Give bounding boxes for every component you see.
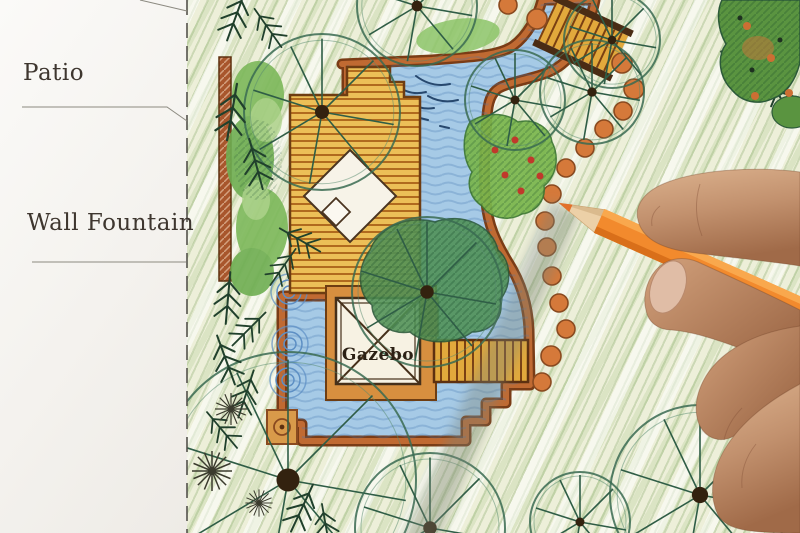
grass-tufts bbox=[192, 393, 273, 517]
landscape-plan-photo: Patio Wall Fountain Gazebo bbox=[0, 0, 800, 533]
plan-drawing bbox=[0, 0, 800, 533]
leader-line-top bbox=[140, 0, 187, 11]
corner-pot-symbol bbox=[267, 410, 297, 444]
corner-planting bbox=[719, 0, 800, 128]
label-wall-fountain: Wall Fountain bbox=[27, 210, 194, 236]
label-patio: Patio bbox=[23, 60, 84, 86]
leader-line-patio bbox=[22, 107, 187, 121]
label-gazebo: Gazebo bbox=[330, 345, 426, 365]
hand bbox=[637, 169, 800, 533]
